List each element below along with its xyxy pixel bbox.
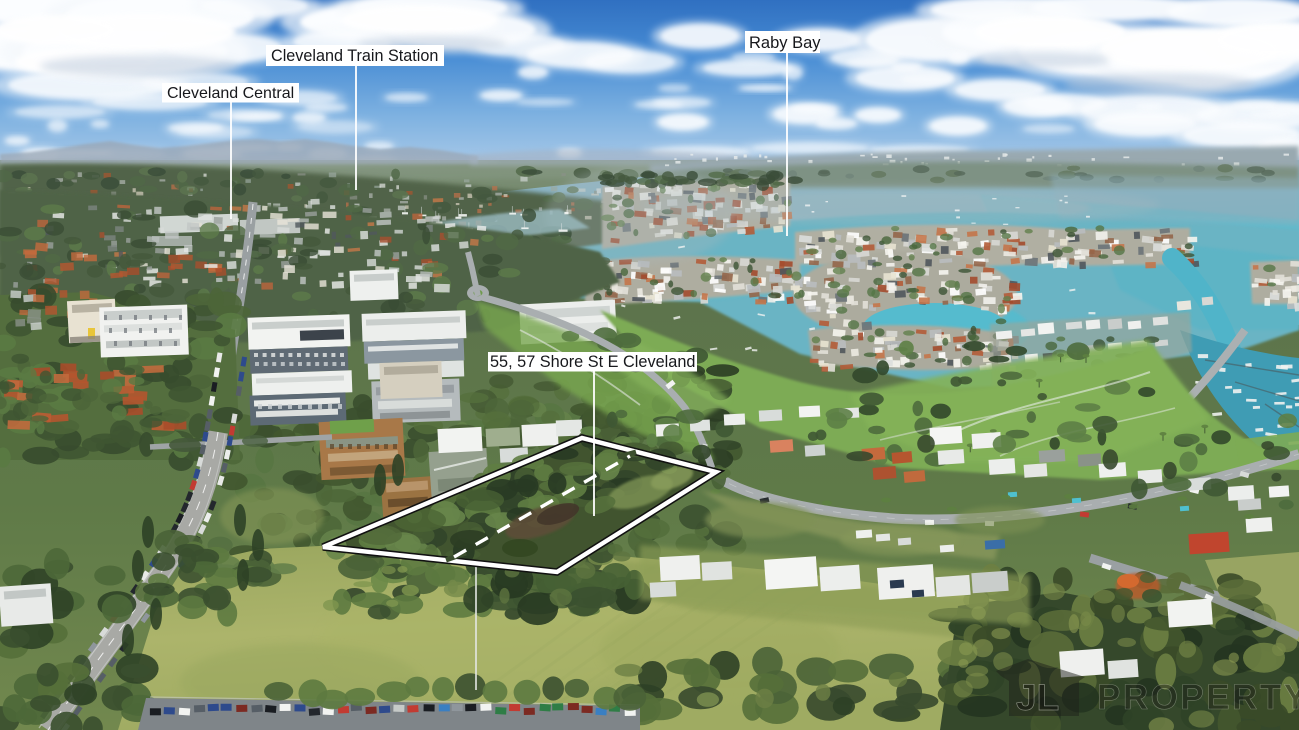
svg-text:Cleveland Train Station: Cleveland Train Station: [271, 47, 438, 65]
svg-text:Cleveland Central: Cleveland Central: [167, 85, 294, 102]
svg-text:PROPERTY: PROPERTY: [1097, 678, 1299, 717]
svg-text:JL: JL: [1016, 677, 1059, 718]
svg-text:Raby Bay: Raby Bay: [749, 34, 821, 52]
svg-text:55, 57 Shore St E Cleveland: 55, 57 Shore St E Cleveland: [490, 353, 695, 371]
